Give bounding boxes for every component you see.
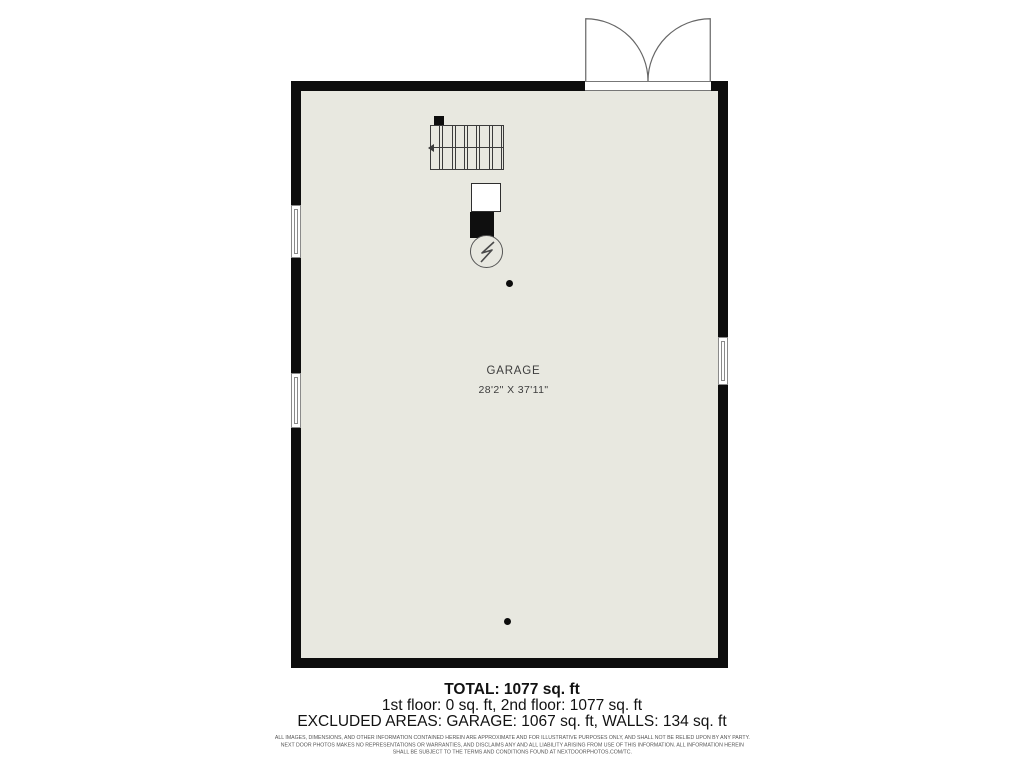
floorplan-page: GARAGE 28'2" X 37'11" TOTAL: 1077 sq. ft… xyxy=(0,0,1024,768)
room-label: GARAGE 28'2" X 37'11" xyxy=(295,365,732,396)
window-icon xyxy=(291,205,301,258)
disclaimer-line: SHALL BE SUBJECT TO THE TERMS AND CONDIT… xyxy=(275,748,750,755)
furnace-icon xyxy=(471,183,501,212)
disclaimer-line: ALL IMAGES, DIMENSIONS, AND OTHER INFORM… xyxy=(275,734,750,741)
disclaimer-section: ALL IMAGES, DIMENSIONS, AND OTHER INFORM… xyxy=(0,734,1024,767)
stairs-icon xyxy=(430,125,504,170)
double-door-icon xyxy=(585,18,711,82)
disclaimer-line: NEXT DOOR PHOTOS MAKES NO REPRESENTATION… xyxy=(275,741,750,748)
column-dot-icon xyxy=(504,618,511,625)
total-area-text: TOTAL: 1077 sq. ft xyxy=(0,682,1024,698)
utility-unit-icon xyxy=(470,212,494,238)
stair-direction-arrow-icon xyxy=(428,144,434,152)
area-summary: TOTAL: 1077 sq. ft 1st floor: 0 sq. ft, … xyxy=(0,682,1024,730)
room-dimensions: 28'2" X 37'11" xyxy=(295,384,732,396)
room-name: GARAGE xyxy=(295,365,732,377)
excluded-areas-text: EXCLUDED AREAS: GARAGE: 1067 sq. ft, WAL… xyxy=(0,714,1024,730)
column-dot-icon xyxy=(506,280,513,287)
garage-floorplan: GARAGE 28'2" X 37'11" xyxy=(291,81,728,668)
door-opening xyxy=(585,81,711,91)
stair-direction-line xyxy=(431,147,503,148)
floor-areas-text: 1st floor: 0 sq. ft, 2nd floor: 1077 sq.… xyxy=(0,698,1024,714)
water-heater-icon xyxy=(470,235,503,268)
window-pane xyxy=(294,209,298,254)
